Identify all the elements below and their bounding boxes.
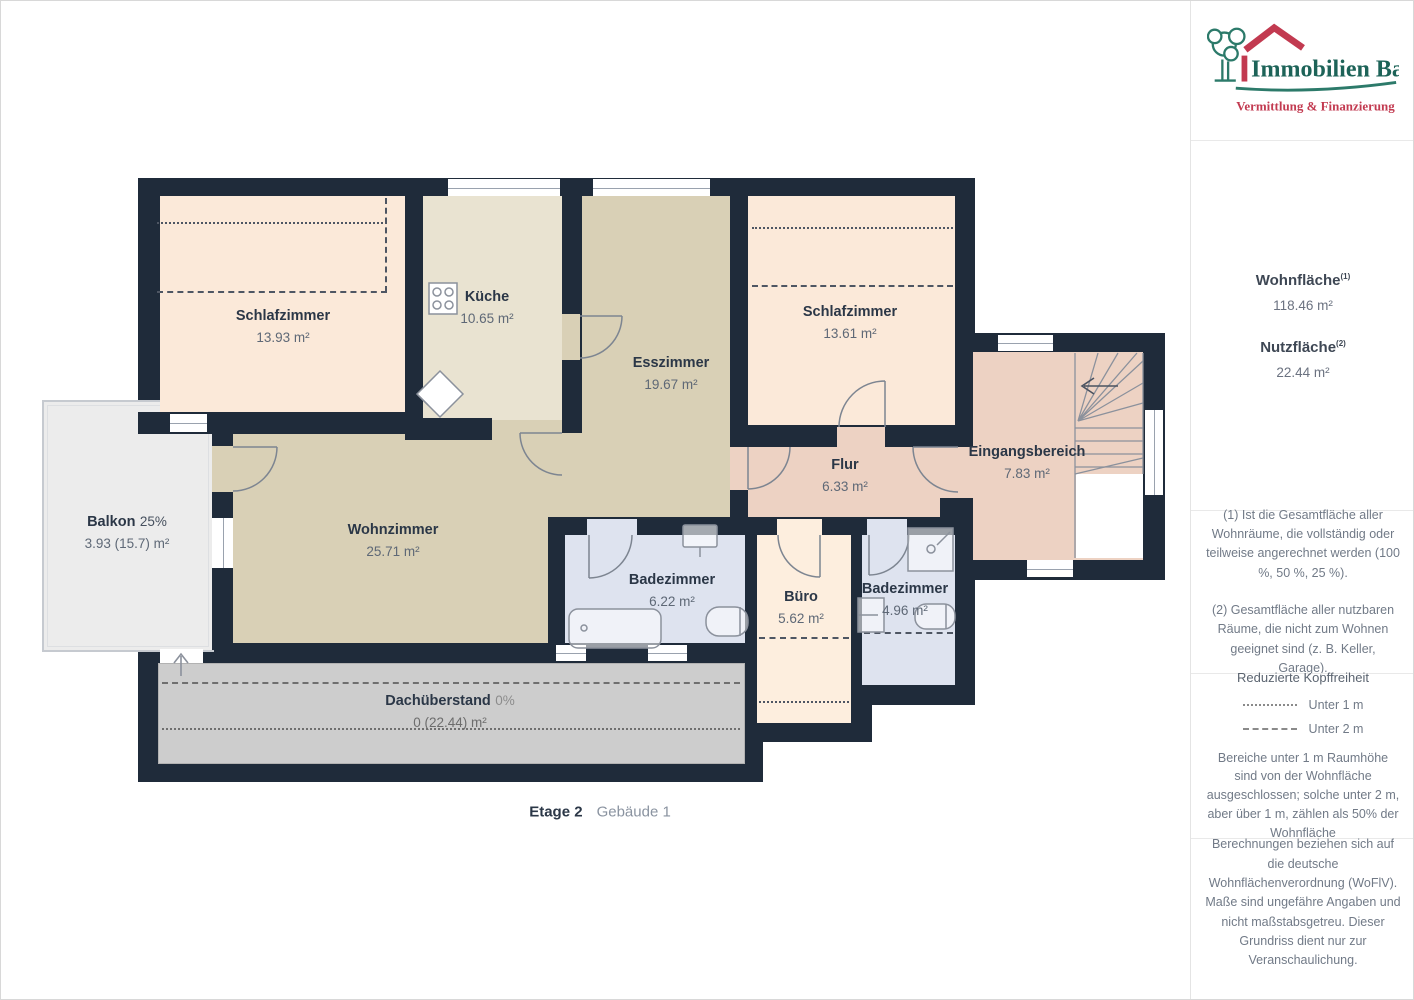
- room-label-dachueberstand: Dachüberstand 0% 0 (22.44) m²: [385, 689, 515, 733]
- disclaimer-section: Berechnungen beziehen sich auf die deuts…: [1191, 838, 1414, 1000]
- brand-suffix: 360: [1325, 996, 1353, 1000]
- room-label-badezimmer-1: Badezimmer 6.22 m²: [629, 570, 715, 612]
- dotted-line-sample: [1243, 704, 1297, 706]
- room-label-badezimmer-2: Badezimmer 4.96 m²: [862, 579, 948, 621]
- footnote-2: (2) Gesamtfläche aller nutzbaren Räume, …: [1205, 601, 1401, 679]
- legend-under-1m: Unter 1 m: [1243, 698, 1364, 712]
- legend-label: Unter 2 m: [1309, 722, 1364, 736]
- brand-name: GIRAFFE: [1253, 996, 1325, 1000]
- room-label-schlafzimmer-links: Schlafzimmer 13.93 m²: [236, 306, 330, 348]
- headroom-title: Reduzierte Kopffreiheit: [1237, 670, 1369, 685]
- room-label-esszimmer: Esszimmer 19.67 m²: [633, 353, 710, 395]
- building-label: Gebäude 1: [597, 804, 671, 821]
- floorplan: Schlafzimmer 13.93 m² Küche 10.65 m² Ess…: [0, 0, 1190, 1000]
- stove-icon: [429, 283, 457, 314]
- metric-value: 22.44 m²: [1260, 365, 1346, 380]
- logo-section: Immobilien Bart Vermittlung & Finanzieru…: [1191, 0, 1414, 140]
- metric-label: Wohnfläche: [1256, 272, 1341, 289]
- door-arcs: [233, 316, 958, 578]
- logo-underline: [1236, 82, 1396, 90]
- floor-label: Etage 2: [529, 804, 582, 821]
- room-label-wohnzimmer: Wohnzimmer 25.71 m²: [348, 520, 439, 562]
- bathtub-icon: [569, 609, 661, 648]
- headroom-body: Bereiche unter 1 m Raumhöhe sind von der…: [1205, 749, 1401, 843]
- dashed-line-sample: [1243, 728, 1297, 730]
- room-label-eingangsbereich: Eingangsbereich 7.83 m²: [969, 442, 1086, 484]
- metric-nutzflaeche: Nutzfläche(2) 22.44 m²: [1260, 339, 1346, 380]
- metric-wohnflaeche: Wohnfläche(1) 118.46 m²: [1256, 272, 1351, 313]
- metric-label: Nutzfläche: [1260, 339, 1336, 356]
- room-label-kueche: Küche 10.65 m²: [460, 287, 513, 329]
- company-logo: Immobilien Bart Vermittlung & Finanzieru…: [1207, 16, 1399, 124]
- room-label-buero: Büro 5.62 m²: [778, 587, 824, 629]
- sidebar: Immobilien Bart Vermittlung & Finanzieru…: [1190, 0, 1414, 1000]
- tree-icon: [1208, 29, 1244, 81]
- legend-label: Unter 1 m: [1309, 698, 1364, 712]
- metrics-section: Wohnfläche(1) 118.46 m² Nutzfläche(2) 22…: [1191, 140, 1414, 510]
- headroom-section: Reduzierte Kopffreiheit Unter 1 m Unter …: [1191, 673, 1414, 838]
- room-label-schlafzimmer-rechts: Schlafzimmer 13.61 m²: [803, 302, 897, 344]
- footnotes-section: (1) Ist die Gesamtfläche aller Wohnräume…: [1191, 510, 1414, 673]
- plan-caption: Etage 2Gebäude 1: [529, 804, 671, 821]
- footnote-1: (1) Ist die Gesamtfläche aller Wohnräume…: [1205, 506, 1401, 584]
- logo-title: Immobilien Bart: [1251, 57, 1399, 83]
- logo-subtitle: Vermittlung & Finanzierung: [1236, 98, 1395, 113]
- kitchen-door-icon: [417, 371, 463, 417]
- giraffe360-logo: GIRAFFE360: [1253, 996, 1353, 1000]
- room-label-flur: Flur 6.33 m²: [822, 455, 868, 497]
- arrow-up-icon: [174, 654, 188, 676]
- shower-icon: [908, 528, 953, 571]
- toilet-icon: [683, 525, 717, 557]
- metric-footnote-ref: (2): [1336, 339, 1346, 348]
- metric-value: 118.46 m²: [1256, 298, 1351, 313]
- metric-footnote-ref: (1): [1340, 272, 1350, 281]
- disclaimer-text: Berechnungen beziehen sich auf die deuts…: [1205, 835, 1401, 971]
- floorplan-page: Schlafzimmer 13.93 m² Küche 10.65 m² Ess…: [0, 0, 1414, 1000]
- room-label-balkon: Balkon 25% 3.93 (15.7) m²: [85, 510, 170, 554]
- legend-under-2m: Unter 2 m: [1243, 722, 1364, 736]
